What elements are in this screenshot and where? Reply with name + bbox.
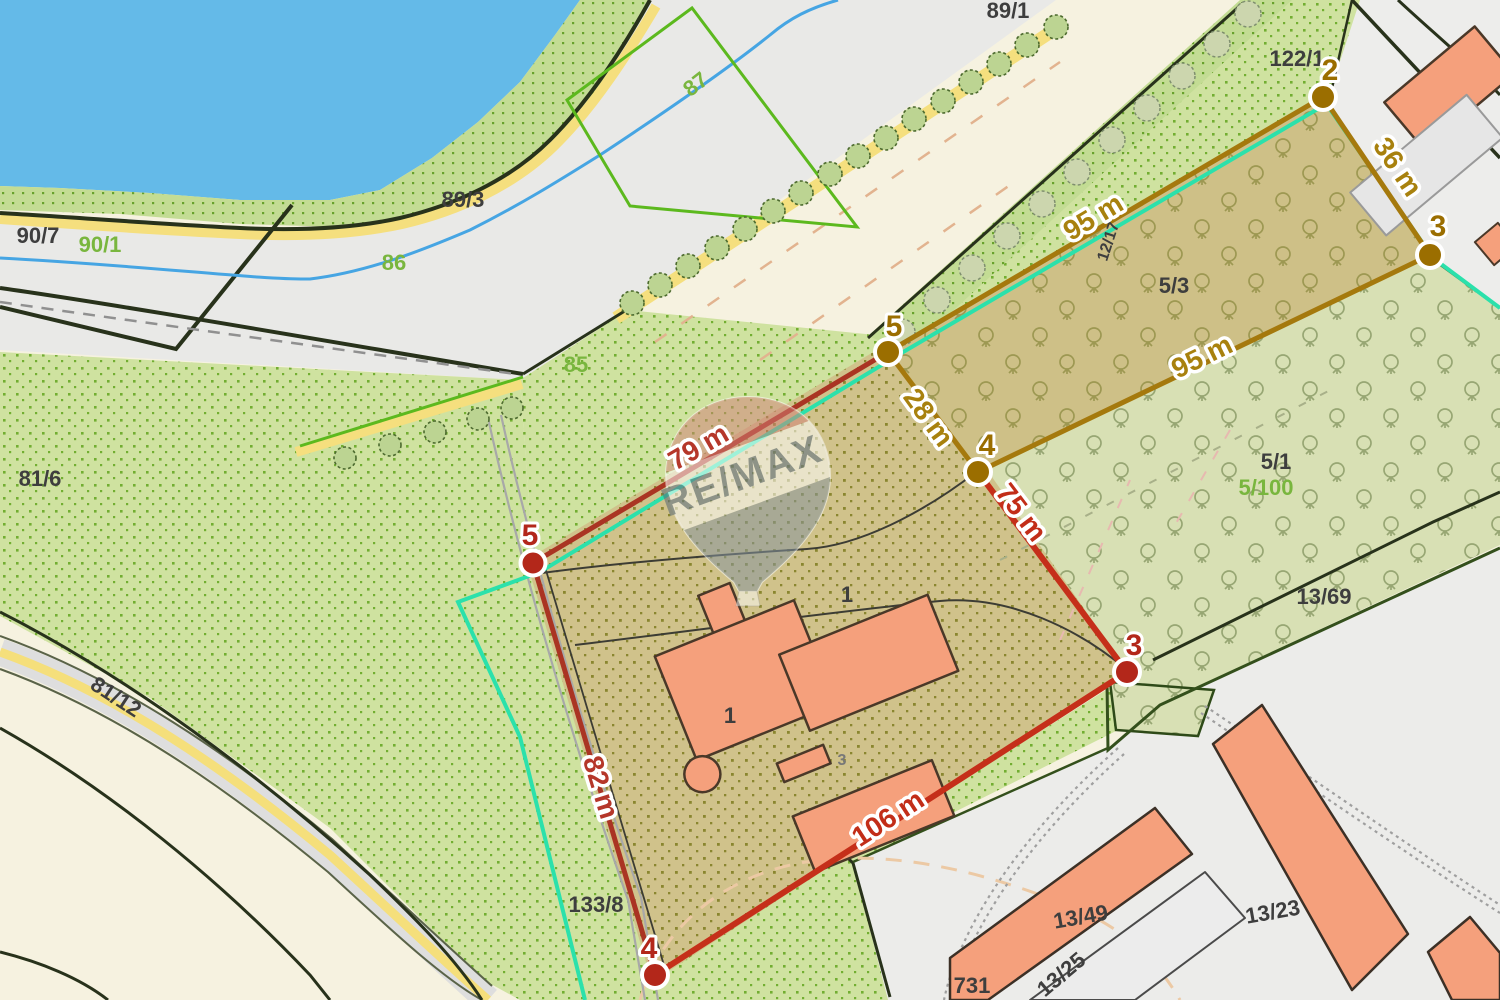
vertex-4-red-marker [642, 962, 668, 988]
vertex-3-brown-marker [1417, 242, 1443, 268]
map-canvas: RE/MAX 89/1 87 89/3 90/7 90/1 86 85 81/6… [0, 0, 1500, 1000]
vertex-5-red-marker [521, 551, 546, 576]
vertex-3-red-marker [1114, 659, 1140, 685]
parcel-label-90-1: 90/1 [79, 232, 122, 257]
vertex-label-4-brown: 4 [979, 429, 996, 462]
parcel-label-81-6: 81/6 [19, 466, 62, 491]
parcel-label-86: 86 [382, 250, 406, 275]
parcel-label-133-8: 133/8 [568, 892, 623, 917]
parcel-label-90-7: 90/7 [17, 223, 60, 248]
parcel-label-89-3: 89/3 [442, 187, 485, 212]
vertex-label-5-red: 5 [522, 519, 539, 552]
parcel-label-1: 1 [841, 582, 853, 607]
parcel-label-5-100: 5/100 [1238, 475, 1293, 500]
small-green-parcel [1110, 682, 1214, 736]
parcel-label-89-1: 89/1 [987, 0, 1030, 23]
vertex-label-2: 2 [1322, 54, 1339, 87]
vertex-label-4-red: 4 [641, 932, 658, 965]
parcel-label-731: 731 [954, 973, 991, 998]
parcel-label-5-1: 5/1 [1261, 449, 1292, 474]
vertex-label-5-brown: 5 [886, 310, 903, 343]
cadastral-map-view[interactable]: RE/MAX 89/1 87 89/3 90/7 90/1 86 85 81/6… [0, 0, 1500, 1000]
vertex-4-brown-marker [965, 459, 991, 485]
vertex-2-marker [1310, 84, 1336, 110]
parcel-label-122-1: 122/1 [1269, 46, 1324, 71]
parcel-label-3: 3 [838, 752, 847, 769]
building-label-1: 1 [724, 703, 736, 728]
parcel-label-85: 85 [564, 352, 588, 377]
parcel-label-5-3: 5/3 [1159, 273, 1190, 298]
vertex-label-3-red: 3 [1126, 629, 1143, 662]
parcel-label-13-69: 13/69 [1296, 584, 1351, 609]
vertex-label-3-brown: 3 [1430, 210, 1447, 243]
